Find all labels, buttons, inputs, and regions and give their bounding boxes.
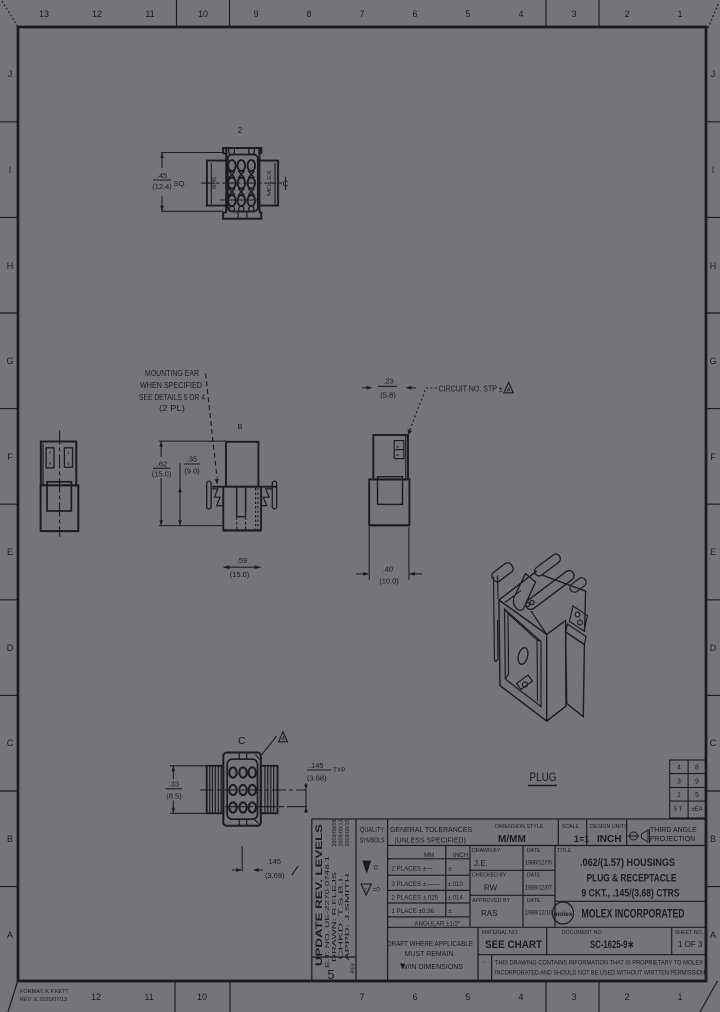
svg-text:I: I bbox=[9, 165, 12, 175]
svg-text:DRAWN BY: DRAWN BY bbox=[472, 848, 501, 854]
svg-text:E: E bbox=[7, 547, 13, 557]
svg-text:INCH: INCH bbox=[453, 852, 468, 859]
svg-text:±: ± bbox=[448, 908, 452, 915]
svg-text:5: 5 bbox=[465, 992, 470, 1002]
svg-text:(UNLESS SPECIFIED): (UNLESS SPECIFIED) bbox=[394, 838, 466, 845]
svg-text:1 OF 3: 1 OF 3 bbox=[678, 940, 703, 949]
svg-text:.45: .45 bbox=[157, 171, 167, 180]
svg-text:5: 5 bbox=[465, 9, 470, 19]
svg-text:.59: .59 bbox=[237, 556, 247, 565]
svg-text:(9.0): (9.0) bbox=[184, 467, 200, 476]
svg-text:F: F bbox=[7, 452, 13, 462]
svg-text:PLUG & RECEPTACLE: PLUG & RECEPTACLE bbox=[587, 873, 677, 885]
svg-text:(8.5): (8.5) bbox=[166, 792, 182, 801]
svg-text:±.010: ±.010 bbox=[448, 881, 464, 888]
svg-text:0: 0 bbox=[374, 865, 378, 872]
svg-text:DATE: DATE bbox=[527, 848, 541, 854]
svg-text:±EA: ±EA bbox=[691, 807, 702, 813]
svg-text:J: J bbox=[711, 69, 716, 79]
svg-text:THIRD ANGLE: THIRD ANGLE bbox=[650, 827, 697, 834]
svg-text:4: 4 bbox=[518, 9, 523, 19]
svg-text:H: H bbox=[710, 261, 717, 271]
svg-text:MOUNTING EAR: MOUNTING EAR bbox=[145, 369, 199, 378]
svg-text:MOLEX: MOLEX bbox=[267, 170, 273, 196]
svg-text:1: 1 bbox=[677, 792, 681, 799]
svg-text:B: B bbox=[710, 834, 716, 844]
svg-text:1=1: 1=1 bbox=[574, 834, 589, 844]
svg-text:SEE CHART: SEE CHART bbox=[485, 939, 542, 951]
svg-text:13: 13 bbox=[39, 9, 49, 19]
svg-text:2009/09/08: 2009/09/08 bbox=[332, 819, 338, 846]
svg-text:5 T: 5 T bbox=[674, 807, 683, 813]
svg-text:2: 2 bbox=[624, 9, 629, 19]
svg-text:RAS: RAS bbox=[481, 909, 497, 918]
svg-text:(15.0): (15.0) bbox=[152, 470, 172, 479]
svg-text:SYMBOLS: SYMBOLS bbox=[360, 838, 385, 845]
svg-text:CHKD: T.S.B.I.: CHKD: T.S.B.I. bbox=[339, 873, 345, 959]
svg-text:W/IN DIMENSIONS: W/IN DIMENSIONS bbox=[401, 964, 463, 971]
svg-text:2: 2 bbox=[624, 992, 629, 1002]
svg-text:1 PLACE ±0.36: 1 PLACE ±0.36 bbox=[391, 908, 434, 915]
svg-text:E.T. NO. UE-2270 0748.1: E.T. NO. UE-2270 0748.1 bbox=[325, 856, 331, 968]
svg-text:F: F bbox=[710, 452, 716, 462]
svg-text:5: 5 bbox=[327, 967, 334, 982]
svg-text:9045: 9045 bbox=[212, 177, 218, 189]
svg-text:DIMENSION STYLE: DIMENSION STYLE bbox=[495, 824, 544, 830]
svg-text:4: 4 bbox=[518, 992, 523, 1002]
svg-text:10: 10 bbox=[197, 992, 207, 1002]
svg-text:(10.0): (10.0) bbox=[379, 577, 399, 586]
svg-text:G: G bbox=[6, 356, 13, 366]
svg-text:CIRCUIT NO. STP ±: CIRCUIT NO. STP ± bbox=[439, 385, 504, 394]
svg-text:TITLE: TITLE bbox=[557, 848, 572, 854]
svg-text:(3.68): (3.68) bbox=[307, 774, 327, 783]
svg-text:=0: =0 bbox=[373, 887, 381, 894]
svg-text:DATE: DATE bbox=[527, 873, 541, 879]
svg-text:1988/12/05: 1988/12/05 bbox=[525, 860, 552, 867]
svg-text:CHECKED BY: CHECKED BY bbox=[472, 873, 507, 879]
svg-text:J: J bbox=[8, 69, 13, 79]
svg-text:REV: REV bbox=[351, 962, 357, 973]
svg-text:D: D bbox=[710, 643, 717, 653]
svg-text:UPDATE REV. LEVELS: UPDATE REV. LEVELS bbox=[314, 824, 325, 966]
svg-text:SC-1625-9∗: SC-1625-9∗ bbox=[590, 939, 634, 951]
svg-text:1: 1 bbox=[677, 992, 682, 1002]
svg-text:G: G bbox=[709, 356, 716, 366]
svg-text:B: B bbox=[237, 422, 242, 431]
svg-text:9 CKT., .145/(3.68) CTRS: 9 CKT., .145/(3.68) CTRS bbox=[582, 888, 680, 900]
svg-text:REV: E 2020/07/13: REV: E 2020/07/13 bbox=[20, 997, 67, 1003]
svg-text:2: 2 bbox=[238, 125, 243, 135]
svg-text:±: ± bbox=[448, 866, 452, 873]
svg-text:INCH: INCH bbox=[597, 834, 621, 845]
svg-text:8: 8 bbox=[306, 9, 311, 19]
svg-text:.40: .40 bbox=[383, 565, 393, 574]
svg-text:MOLEX INCORPORATED: MOLEX INCORPORATED bbox=[582, 909, 685, 921]
svg-text:molex: molex bbox=[554, 911, 573, 918]
svg-text:MM: MM bbox=[424, 852, 434, 859]
svg-text:12: 12 bbox=[91, 992, 101, 1002]
svg-text:.35: .35 bbox=[187, 455, 197, 464]
svg-text:H: H bbox=[7, 261, 14, 271]
svg-text:3 PLACES ±.——: 3 PLACES ±.—— bbox=[391, 881, 441, 888]
svg-text:A: A bbox=[710, 930, 716, 940]
svg-text:THIS DRAWING CONTAINS INFORMAT: THIS DRAWING CONTAINS INFORMATION THAT I… bbox=[495, 960, 703, 967]
svg-text:(12.4): (12.4) bbox=[152, 182, 172, 191]
svg-text:(2 PL): (2 PL) bbox=[159, 404, 185, 413]
svg-text:APPROVED BY: APPROVED BY bbox=[472, 898, 510, 904]
svg-text:SEE DETAILS 5 OR 4: SEE DETAILS 5 OR 4 bbox=[139, 393, 205, 402]
svg-text:RW: RW bbox=[484, 884, 498, 893]
svg-text:E: E bbox=[710, 547, 716, 557]
svg-text:MUST REMAIN: MUST REMAIN bbox=[405, 951, 454, 958]
svg-text:SQ.: SQ. bbox=[174, 179, 187, 188]
svg-text:12: 12 bbox=[92, 9, 102, 19]
svg-text:1988/12/07: 1988/12/07 bbox=[525, 885, 552, 892]
svg-text:ANGULAR ±1/2°: ANGULAR ±1/2° bbox=[414, 921, 461, 928]
svg-text:(15.0): (15.0) bbox=[230, 570, 250, 579]
svg-text:7: 7 bbox=[364, 888, 367, 894]
svg-text:M/MM: M/MM bbox=[498, 834, 526, 845]
svg-text:A: A bbox=[507, 388, 511, 394]
svg-text:.23: .23 bbox=[383, 377, 393, 386]
svg-text:(5.8): (5.8) bbox=[380, 391, 396, 400]
svg-text:7: 7 bbox=[359, 9, 364, 19]
svg-text:7: 7 bbox=[359, 992, 364, 1002]
svg-text:C: C bbox=[283, 180, 289, 189]
svg-text:2 PLACES ±—: 2 PLACES ±— bbox=[391, 866, 433, 873]
svg-text:(3.69): (3.69) bbox=[265, 871, 285, 880]
svg-text:C: C bbox=[238, 736, 245, 747]
svg-text:.145: .145 bbox=[309, 761, 324, 770]
svg-text:TYP: TYP bbox=[333, 767, 346, 774]
svg-text:INCORPORATED AND SHOULD NOT BE: INCORPORATED AND SHOULD NOT BE USED WITH… bbox=[495, 970, 705, 977]
svg-text:SHEET NO.: SHEET NO. bbox=[675, 930, 703, 936]
svg-text:PROJECTION: PROJECTION bbox=[650, 836, 695, 843]
svg-text:DRAFT WHERE APPLICABLE: DRAFT WHERE APPLICABLE bbox=[387, 941, 473, 948]
svg-text:J.E.: J.E. bbox=[474, 859, 488, 868]
svg-text:FORMAT: K.F.KETT: FORMAT: K.F.KETT bbox=[20, 989, 69, 995]
svg-text:4: 4 bbox=[677, 765, 681, 772]
svg-text:B: B bbox=[7, 834, 13, 844]
svg-text:9: 9 bbox=[253, 9, 258, 19]
svg-text:GENERAL TOLERANCES: GENERAL TOLERANCES bbox=[390, 827, 473, 834]
svg-text:±.014: ±.014 bbox=[448, 895, 464, 902]
svg-text:2009/09/13: 2009/09/13 bbox=[339, 819, 345, 846]
svg-text:DESIGN UNITS: DESIGN UNITS bbox=[590, 824, 628, 830]
svg-text:9: 9 bbox=[695, 778, 699, 785]
svg-text:11: 11 bbox=[144, 992, 153, 1002]
svg-text:.062/(1.57) HOUSINGS: .062/(1.57) HOUSINGS bbox=[580, 857, 675, 869]
svg-text:DRAWN: R.FLEJS: DRAWN: R.FLEJS bbox=[332, 871, 338, 962]
svg-text:DATE: DATE bbox=[527, 898, 541, 904]
svg-text:1988/12/10: 1988/12/10 bbox=[525, 910, 552, 917]
svg-text:5: 5 bbox=[695, 792, 699, 799]
svg-text:I: I bbox=[712, 165, 715, 175]
svg-text:D: D bbox=[7, 643, 14, 653]
svg-text:PLUG: PLUG bbox=[530, 770, 557, 784]
svg-text:SCALE: SCALE bbox=[562, 824, 580, 830]
svg-text:DOCUMENT NO.: DOCUMENT NO. bbox=[562, 930, 603, 936]
svg-text:11: 11 bbox=[145, 9, 154, 19]
svg-text:.33: .33 bbox=[169, 780, 179, 789]
svg-text:8: 8 bbox=[695, 765, 699, 772]
svg-text:3: 3 bbox=[571, 992, 576, 1002]
svg-text:C: C bbox=[710, 738, 717, 748]
svg-text:MATERIAL NO.: MATERIAL NO. bbox=[482, 930, 519, 936]
svg-text:A: A bbox=[7, 930, 13, 940]
svg-text:10: 10 bbox=[198, 9, 208, 19]
svg-text:.145: .145 bbox=[266, 857, 281, 866]
svg-text:C: C bbox=[7, 738, 14, 748]
svg-text:.62: .62 bbox=[157, 460, 167, 469]
svg-text:6: 6 bbox=[412, 9, 417, 19]
svg-text:3: 3 bbox=[677, 778, 681, 785]
svg-text:3: 3 bbox=[571, 9, 576, 19]
svg-text:2 PLACES ±.025: 2 PLACES ±.025 bbox=[391, 895, 438, 902]
svg-text:⍻: ⍻ bbox=[482, 959, 485, 965]
svg-text:WHEN SPECIFIED: WHEN SPECIFIED bbox=[140, 381, 202, 390]
svg-text:2009/09/15: 2009/09/15 bbox=[345, 819, 351, 846]
svg-text:1: 1 bbox=[677, 9, 682, 19]
svg-text:QUALITY: QUALITY bbox=[360, 827, 384, 834]
svg-text:6: 6 bbox=[412, 992, 417, 1002]
svg-text:APPD: J.SMITH: APPD: J.SMITH bbox=[345, 873, 351, 960]
